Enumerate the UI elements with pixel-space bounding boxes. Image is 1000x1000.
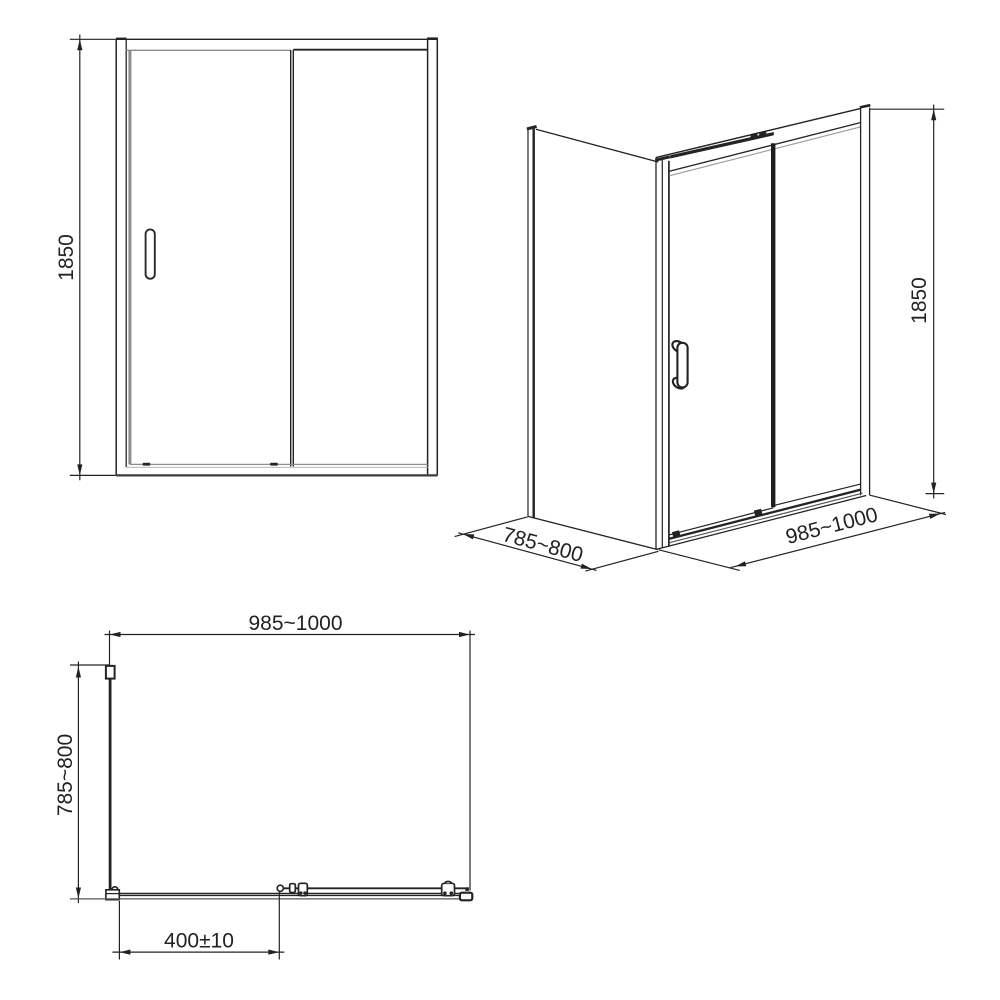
svg-text:985~1000: 985~1000: [248, 612, 342, 635]
svg-text:1850: 1850: [908, 277, 931, 324]
svg-text:400±10: 400±10: [164, 930, 234, 953]
svg-text:785~800: 785~800: [54, 734, 77, 816]
svg-text:1850: 1850: [55, 234, 78, 281]
